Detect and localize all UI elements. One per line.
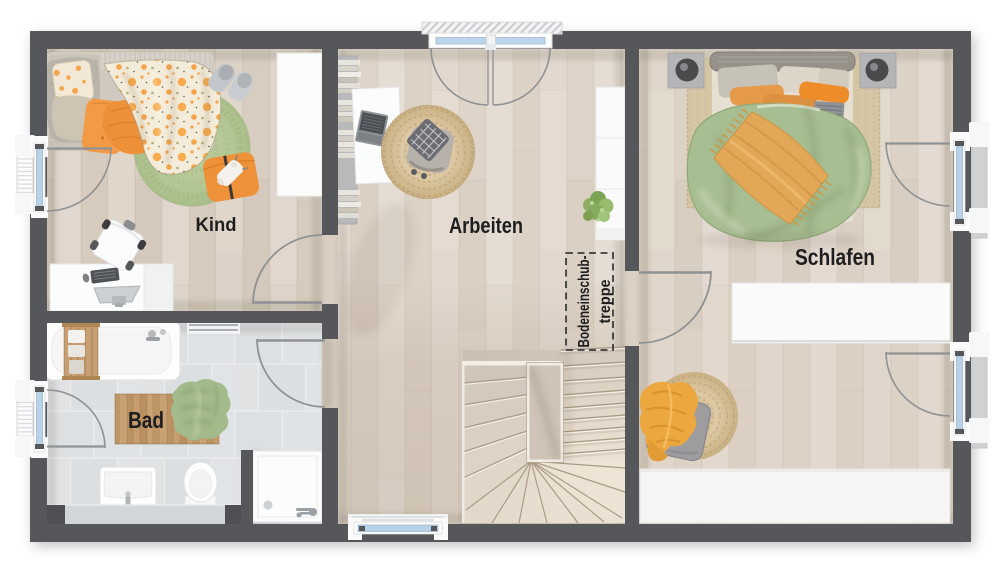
svg-text:Bodeneinschub-: Bodeneinschub-	[576, 256, 593, 348]
svg-text:treppe: treppe	[597, 279, 614, 323]
svg-text:Schlafen: Schlafen	[795, 244, 875, 270]
svg-text:Arbeiten: Arbeiten	[449, 213, 523, 238]
svg-text:Bad: Bad	[128, 407, 164, 433]
svg-text:Kind: Kind	[196, 214, 237, 236]
